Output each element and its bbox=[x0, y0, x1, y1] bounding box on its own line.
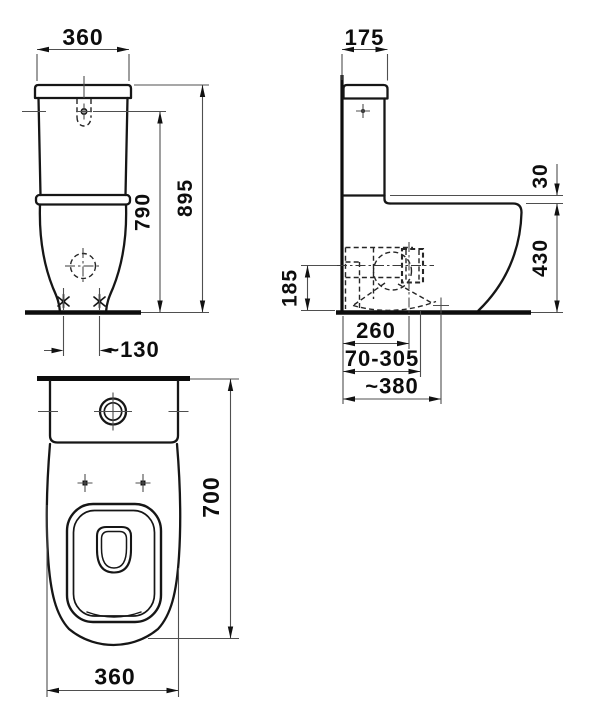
technical-drawing-canvas: 360 790 895 ~130 bbox=[0, 0, 614, 726]
trap-hidden-lines bbox=[337, 242, 436, 318]
dim-label-side-rim-height: 430 bbox=[529, 239, 552, 277]
dim-label-side-cistern-depth: 175 bbox=[345, 25, 385, 50]
dim-side-cistern-depth: 175 bbox=[342, 25, 388, 81]
dim-label-front-inlet-height: 790 bbox=[132, 193, 155, 231]
dim-label-front-fixing-centres: ~130 bbox=[106, 337, 160, 362]
dim-front-fixing-centres: ~130 bbox=[44, 316, 160, 362]
cistern-lid-outline bbox=[35, 85, 131, 98]
cistern-lid-outline bbox=[344, 85, 388, 99]
dim-front-width: 360 bbox=[37, 24, 129, 81]
dim-side-shelf-to-rim: 30 bbox=[390, 163, 563, 203]
dim-side-outlet-height: 185 bbox=[279, 266, 338, 311]
inlet-target-icon bbox=[76, 104, 92, 120]
bowl-pedestal-outline bbox=[40, 205, 126, 313]
seat-hinge-icon bbox=[78, 474, 93, 492]
dim-label-front-width: 360 bbox=[62, 24, 103, 50]
dim-label-front-overall-height: 895 bbox=[174, 179, 197, 217]
dim-label-top-width: 360 bbox=[94, 664, 135, 690]
dim-label-side-outlet-from-wall: 260 bbox=[356, 318, 396, 343]
dim-side-rim-height: 430 bbox=[529, 204, 560, 313]
bowl-profile-outline bbox=[390, 204, 522, 311]
dim-front-inlet-height: 790 bbox=[93, 112, 166, 313]
cistern-front-outline bbox=[385, 99, 391, 204]
top-view: 700 360 bbox=[37, 379, 239, 698]
technical-drawing-page: 360 790 895 ~130 bbox=[0, 0, 614, 726]
dim-label-side-shelf-to-rim: 30 bbox=[529, 163, 552, 188]
seat-hinge-icon bbox=[136, 474, 151, 492]
dim-label-side-connection-range: 70-305 bbox=[345, 346, 420, 371]
dim-label-side-overall-depth: ~380 bbox=[365, 374, 419, 399]
inlet-target-icon bbox=[356, 104, 370, 118]
cistern-body-outline bbox=[39, 98, 128, 195]
lid-hole-icon bbox=[94, 393, 132, 431]
dim-label-side-outlet-height: 185 bbox=[279, 269, 302, 307]
side-view: 175 30 430 185 260 70-305 bbox=[279, 25, 564, 404]
dim-label-top-overall-length: 700 bbox=[198, 476, 224, 517]
tank-shelf-outline bbox=[36, 195, 130, 205]
seat-outer-outline bbox=[67, 504, 161, 622]
front-view: 360 790 895 ~130 bbox=[22, 24, 209, 362]
bowl-opening-inner bbox=[102, 532, 127, 569]
